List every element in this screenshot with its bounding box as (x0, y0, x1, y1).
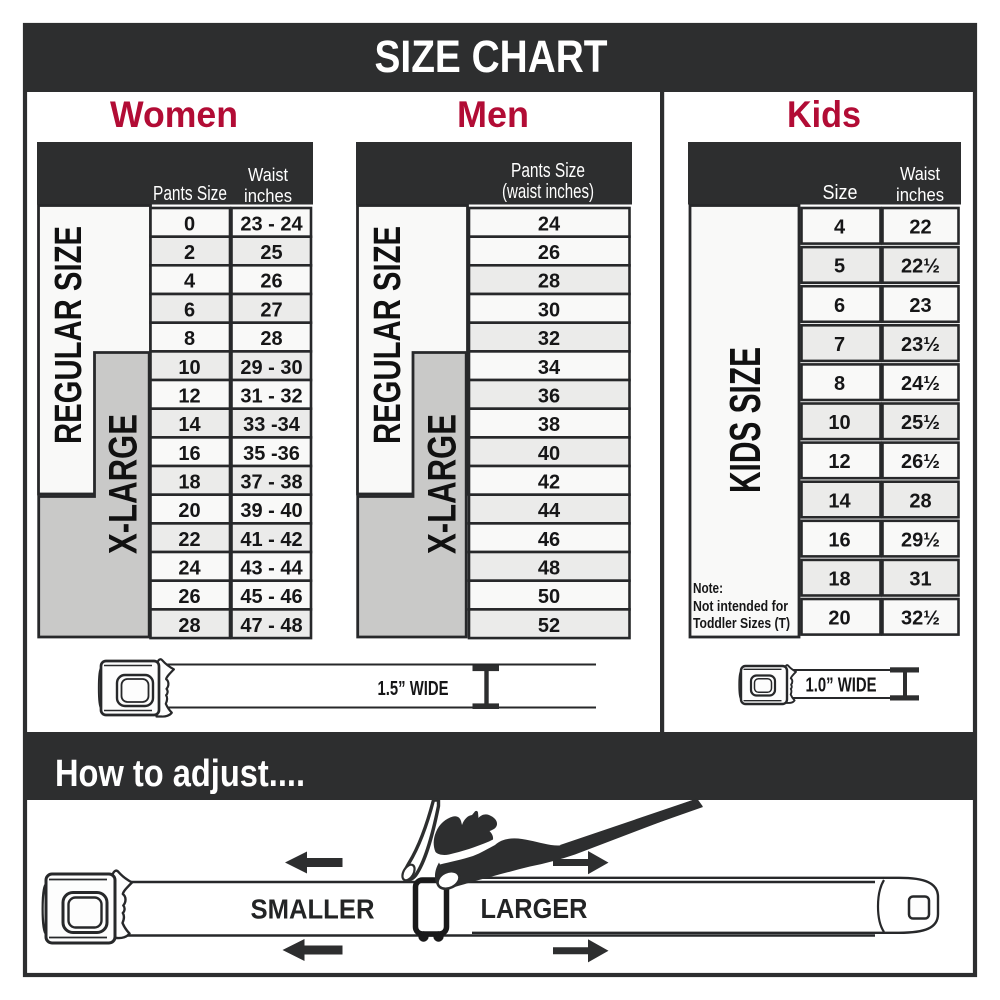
svg-text:48: 48 (538, 557, 560, 579)
svg-text:16: 16 (828, 529, 850, 551)
svg-text:28: 28 (260, 328, 282, 350)
svg-text:23 - 24: 23 - 24 (240, 213, 303, 235)
svg-text:6: 6 (834, 295, 845, 317)
svg-text:REGULAR SIZE: REGULAR SIZE (367, 226, 409, 444)
svg-text:SMALLER: SMALLER (251, 894, 375, 925)
svg-text:REGULAR SIZE: REGULAR SIZE (48, 226, 90, 444)
svg-text:40: 40 (538, 443, 560, 465)
svg-text:10: 10 (178, 357, 200, 379)
svg-text:Kids: Kids (787, 94, 861, 135)
svg-text:32½: 32½ (901, 608, 940, 630)
svg-text:24: 24 (178, 557, 201, 579)
svg-text:35 -36: 35 -36 (243, 443, 300, 465)
svg-text:22: 22 (909, 217, 931, 239)
svg-text:6: 6 (184, 299, 195, 321)
svg-text:22: 22 (178, 529, 200, 551)
svg-text:1.0” WIDE: 1.0” WIDE (806, 674, 877, 697)
svg-text:Waist: Waist (900, 163, 940, 184)
svg-text:29½: 29½ (901, 529, 940, 551)
svg-text:24½: 24½ (901, 373, 940, 395)
svg-text:34: 34 (538, 357, 561, 379)
svg-text:10: 10 (828, 412, 850, 434)
svg-text:X-LARGE: X-LARGE (421, 414, 465, 554)
svg-text:42: 42 (538, 471, 560, 493)
svg-text:27: 27 (260, 299, 282, 321)
svg-text:24: 24 (538, 213, 561, 235)
svg-text:12: 12 (828, 451, 850, 473)
svg-text:26½: 26½ (901, 451, 940, 473)
svg-text:Men: Men (457, 94, 529, 135)
svg-text:28: 28 (178, 615, 200, 637)
svg-text:28: 28 (538, 271, 560, 293)
svg-text:29 - 30: 29 - 30 (240, 357, 302, 379)
svg-text:Pants Size: Pants Size (153, 183, 227, 205)
svg-text:31: 31 (909, 569, 931, 591)
svg-text:KIDS SIZE: KIDS SIZE (721, 347, 770, 493)
svg-text:8: 8 (834, 373, 845, 395)
svg-text:1.5” WIDE: 1.5” WIDE (378, 677, 449, 700)
svg-text:43 - 44: 43 - 44 (240, 557, 303, 579)
svg-text:Pants Size: Pants Size (511, 160, 585, 182)
svg-text:22½: 22½ (901, 256, 940, 278)
svg-text:28: 28 (909, 490, 931, 512)
svg-text:38: 38 (538, 414, 560, 436)
svg-text:Waist: Waist (248, 164, 288, 185)
svg-text:20: 20 (828, 608, 850, 630)
svg-text:SIZE CHART: SIZE CHART (375, 31, 608, 82)
svg-text:52: 52 (538, 615, 560, 637)
svg-text:(waist inches): (waist inches) (502, 181, 594, 203)
svg-text:18: 18 (178, 471, 200, 493)
svg-text:25½: 25½ (901, 412, 940, 434)
svg-text:4: 4 (834, 217, 846, 239)
svg-text:26: 26 (178, 586, 200, 608)
svg-text:37 - 38: 37 - 38 (240, 471, 302, 493)
svg-text:Women: Women (110, 94, 238, 135)
svg-text:inches: inches (896, 184, 944, 205)
svg-text:Toddler Sizes (T): Toddler Sizes (T) (693, 616, 790, 632)
svg-text:5: 5 (834, 256, 845, 278)
svg-text:45 - 46: 45 - 46 (240, 586, 302, 608)
svg-text:X-LARGE: X-LARGE (102, 414, 146, 554)
svg-text:Not intended for: Not intended for (693, 599, 788, 615)
svg-text:26: 26 (538, 242, 560, 264)
svg-text:33 -34: 33 -34 (243, 414, 301, 436)
svg-text:0: 0 (184, 213, 195, 235)
svg-text:18: 18 (828, 569, 850, 591)
svg-text:12: 12 (178, 385, 200, 407)
svg-text:23: 23 (909, 295, 931, 317)
svg-text:16: 16 (178, 443, 200, 465)
svg-text:26: 26 (260, 271, 282, 293)
svg-text:30: 30 (538, 299, 560, 321)
svg-text:4: 4 (184, 271, 196, 293)
svg-text:Note:: Note: (693, 581, 723, 597)
svg-text:8: 8 (184, 328, 195, 350)
svg-text:2: 2 (184, 242, 195, 264)
svg-text:20: 20 (178, 500, 200, 522)
svg-text:LARGER: LARGER (481, 893, 588, 924)
svg-text:23½: 23½ (901, 334, 940, 356)
svg-text:7: 7 (834, 334, 845, 356)
svg-text:44: 44 (538, 500, 561, 522)
svg-text:32: 32 (538, 328, 560, 350)
svg-text:14: 14 (828, 490, 851, 512)
svg-text:41 - 42: 41 - 42 (240, 529, 302, 551)
svg-text:25: 25 (260, 242, 282, 264)
svg-text:Size: Size (823, 182, 858, 204)
svg-text:36: 36 (538, 385, 560, 407)
svg-text:47 - 48: 47 - 48 (240, 615, 302, 637)
svg-text:50: 50 (538, 586, 560, 608)
svg-text:31 - 32: 31 - 32 (240, 385, 302, 407)
svg-text:14: 14 (178, 414, 201, 436)
svg-text:39 - 40: 39 - 40 (240, 500, 302, 522)
svg-text:How to adjust....: How to adjust.... (55, 753, 305, 795)
svg-text:inches: inches (244, 185, 292, 206)
svg-text:46: 46 (538, 529, 560, 551)
